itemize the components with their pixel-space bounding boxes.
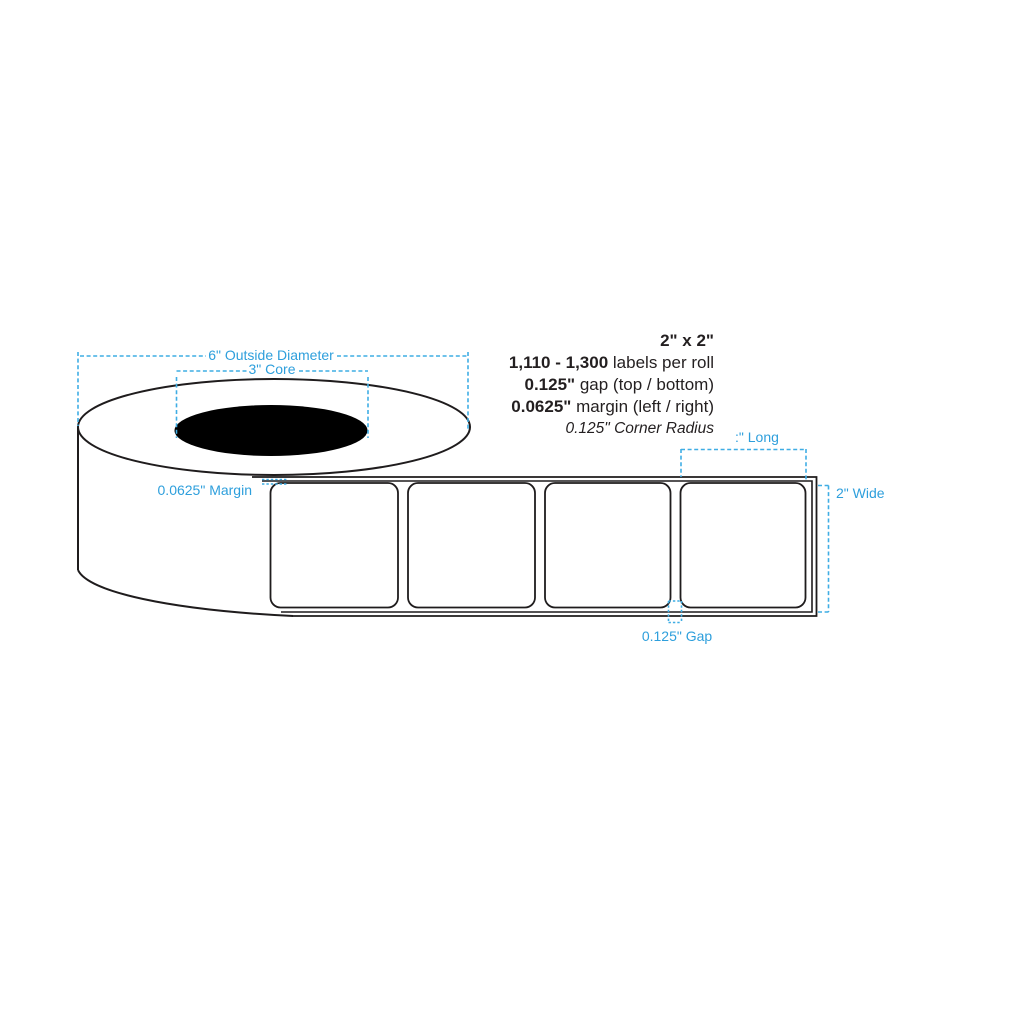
spec-labels-per-roll-text: labels per roll — [608, 353, 714, 372]
margin-label: 0.0625" Margin — [158, 482, 252, 498]
core-label: 3" Core — [249, 361, 296, 377]
spec-block: 2" x 2" 1,110 - 1,300 labels per roll 0.… — [509, 330, 714, 440]
spec-margin-text: margin (left / right) — [571, 397, 714, 416]
blank-label-3 — [545, 483, 671, 608]
wide-bracket — [818, 486, 830, 613]
gap-label: 0.125" Gap — [642, 628, 712, 644]
long-bracket — [681, 449, 806, 480]
spec-gap: 0.125" gap (top / bottom) — [509, 374, 714, 396]
blank-label-2 — [408, 483, 535, 608]
spec-gap-text: gap (top / bottom) — [575, 375, 714, 394]
spec-labels-per-roll: 1,110 - 1,300 labels per roll — [509, 352, 714, 374]
spec-margin-value: 0.0625" — [511, 397, 571, 416]
label-roll-diagram: 6" Outside Diameter 3" Core 0.0625" Marg… — [0, 0, 1024, 1024]
spec-size: 2" x 2" — [509, 330, 714, 352]
diagram-linework — [0, 0, 1024, 1024]
spec-labels-per-roll-value: 1,110 - 1,300 — [509, 353, 608, 372]
roll-bottom-curve — [78, 570, 293, 616]
spec-margin: 0.0625" margin (left / right) — [509, 396, 714, 418]
roll-core-hole — [175, 405, 368, 456]
blank-label-1 — [271, 483, 399, 608]
long-label: :" Long — [735, 429, 779, 445]
blank-label-4 — [681, 483, 806, 608]
spec-gap-value: 0.125" — [524, 375, 575, 394]
strip-inner-edge — [262, 481, 812, 612]
spec-corner-radius: 0.125" Corner Radius — [509, 418, 714, 440]
wide-label: 2" Wide — [836, 485, 885, 501]
blank-labels — [271, 483, 806, 608]
